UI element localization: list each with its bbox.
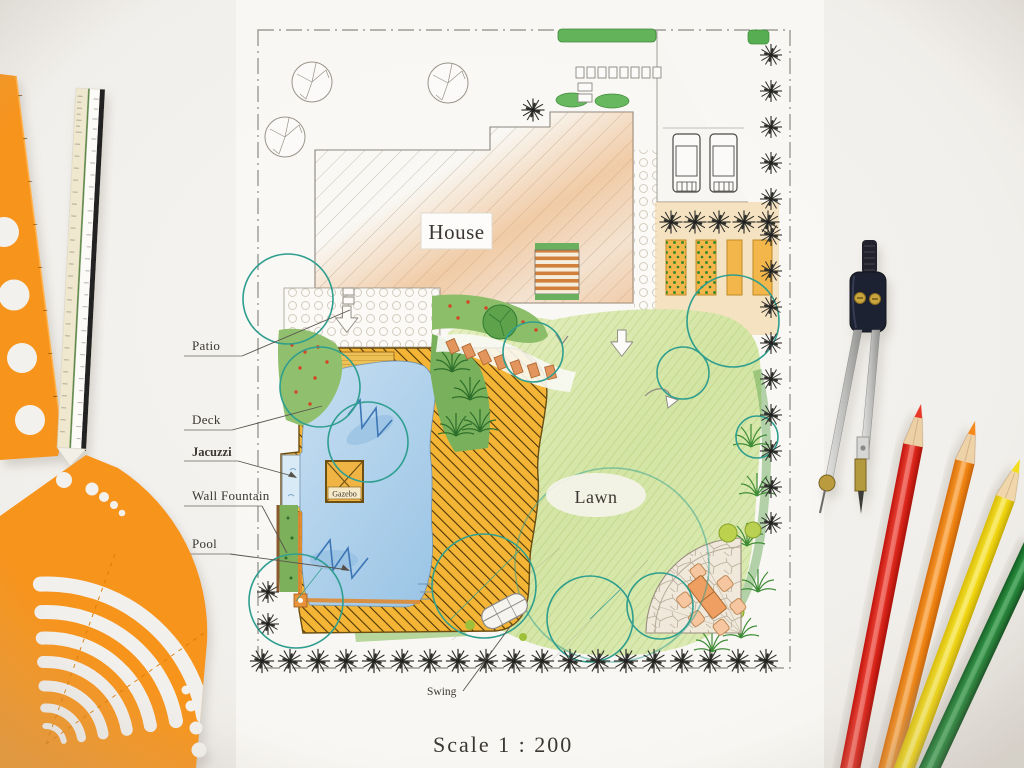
bush <box>719 524 737 542</box>
label-jacuzzi: Jacuzzi <box>192 445 232 459</box>
wooden-steps <box>535 243 579 300</box>
label-pool: Pool <box>192 536 217 551</box>
house-label-box: House <box>421 213 492 249</box>
gazebo-structure: Gazebo <box>326 461 363 502</box>
house-label: House <box>428 220 484 244</box>
arrow-detail <box>343 297 354 304</box>
outline-tree <box>428 63 468 103</box>
lawn-label: Lawn <box>575 487 618 507</box>
arrow-detail <box>343 288 354 295</box>
car-top-view <box>710 134 737 192</box>
bush <box>519 633 527 641</box>
scale-label: Scale 1 : 200 <box>433 732 573 757</box>
paver-walkway <box>634 150 657 310</box>
label-deck: Deck <box>192 412 221 427</box>
outline-tree <box>265 117 305 157</box>
bush <box>465 620 475 630</box>
outline-tree <box>292 62 332 102</box>
car-top-view <box>673 134 700 192</box>
wall-fountain-bed <box>277 505 298 592</box>
label-patio: Patio <box>192 338 220 353</box>
label-wall-fountain: Wall Fountain <box>192 488 270 503</box>
compass-wheel <box>819 475 835 491</box>
garden-plan-photo: Gazebo <box>0 0 1024 768</box>
compass-ferrule <box>855 459 866 491</box>
gazebo-label: Gazebo <box>332 490 356 499</box>
photo-canvas: Gazebo <box>0 0 1024 768</box>
label-swing: Swing <box>427 686 457 698</box>
